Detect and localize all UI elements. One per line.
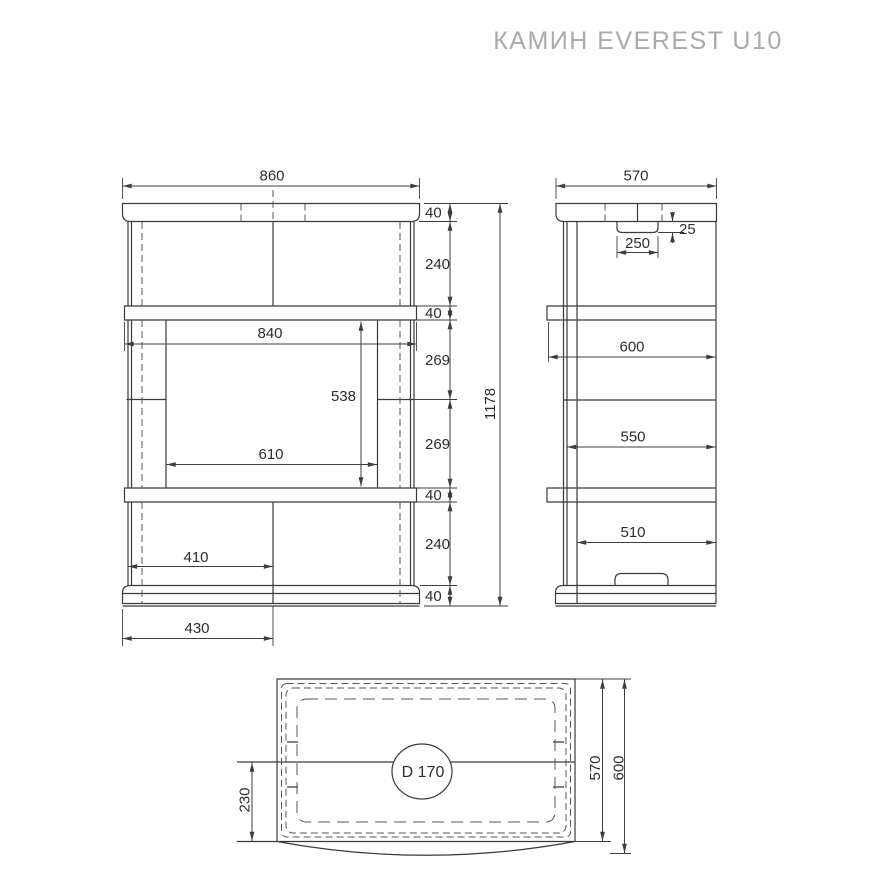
dim-total-height-label: 1178 (482, 388, 499, 420)
front-outline (123, 204, 420, 607)
dim-flue-offset-label: 230 (237, 787, 254, 812)
dim-front-width: 860 (123, 168, 420, 200)
front-view: 860 840 610 538 410 (123, 168, 509, 647)
chain-label-4: 269 (425, 436, 450, 453)
dim-opening-width-label: 610 (258, 446, 283, 463)
dim-opening-width: 610 (167, 446, 378, 465)
dim-flue-offset: 230 (237, 763, 254, 842)
dim-height-chain-ext (415, 222, 458, 586)
flue-diameter-label: D 170 (402, 764, 445, 781)
technical-drawing-page: КАМИН EVEREST U10 860 840 610 (0, 0, 891, 891)
chain-label-7: 40 (425, 588, 442, 605)
dim-height-chain: 40 240 40 269 269 40 240 40 (415, 204, 458, 607)
chain-label-2: 40 (425, 305, 442, 322)
dim-notch-depth: 25 (658, 212, 696, 243)
dim-opening-height: 538 (331, 322, 361, 487)
dim-hearth-left-label: 410 (183, 549, 208, 566)
dim-shelf-depth-label: 600 (619, 339, 644, 356)
dim-body-depth: 550 (567, 429, 716, 448)
dim-hearth-left: 410 (128, 549, 273, 567)
fireplace-drawing: КАМИН EVEREST U10 860 840 610 (0, 0, 891, 891)
dim-notch-width-label: 250 (625, 235, 650, 252)
dim-top-depth-outer-label: 600 (611, 755, 628, 780)
dim-notch-width: 250 (617, 235, 658, 258)
side-view: 570 25 250 600 (547, 168, 717, 607)
chain-label-3: 269 (425, 352, 450, 369)
dim-notch-depth-label: 25 (679, 221, 696, 238)
dim-body-depth-label: 550 (620, 429, 645, 446)
dim-base-depth: 510 (577, 524, 716, 543)
dim-shelf-width: 840 (125, 322, 417, 351)
dim-shelf-width-label: 840 (257, 325, 282, 342)
dim-base-left: 430 (123, 606, 274, 646)
front-view-dimensions: 860 840 610 538 410 (123, 168, 509, 647)
top-view: D 170 230 570 600 (237, 679, 632, 855)
side-hidden-lines (605, 204, 662, 222)
dim-base-depth-label: 510 (620, 524, 645, 541)
front-view-geometry (123, 190, 420, 606)
dim-side-depth: 570 (556, 168, 717, 200)
dim-top-depth-inner-label: 570 (587, 755, 604, 780)
chain-label-5: 40 (425, 487, 442, 504)
side-outline (547, 204, 717, 607)
dim-front-width-label: 860 (259, 168, 284, 185)
dim-top-depth-outer: 600 (611, 680, 628, 854)
chain-label-0: 40 (425, 205, 442, 222)
dim-side-depth-label: 570 (623, 168, 648, 185)
dim-base-left-label: 430 (184, 620, 209, 637)
drawing-title: КАМИН EVEREST U10 (493, 27, 783, 55)
side-view-dimensions: 570 25 250 600 (549, 168, 717, 543)
dim-shelf-depth: 600 (549, 322, 716, 362)
chain-label-6: 240 (425, 536, 450, 553)
side-view-geometry (547, 204, 717, 607)
top-view-geometry: D 170 (237, 679, 575, 855)
chain-label-1: 240 (425, 256, 450, 273)
dim-opening-height-label: 538 (331, 388, 356, 405)
